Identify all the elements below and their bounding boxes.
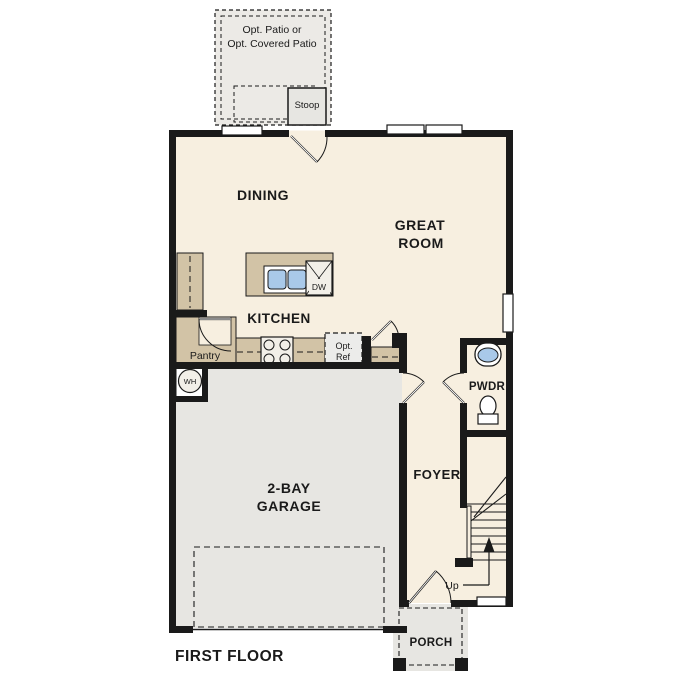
powder-sink-basin bbox=[478, 348, 498, 362]
wh-wall-bottom bbox=[176, 396, 208, 402]
porch-label: PORCH bbox=[409, 637, 452, 649]
pantry-label: Pantry bbox=[190, 350, 221, 362]
floor-title: FIRST FLOOR bbox=[175, 648, 284, 665]
window-great-room-2 bbox=[426, 125, 462, 134]
floor-plan-drawing: Opt. Patio or Opt. Covered Patio Stoop P… bbox=[0, 0, 687, 687]
opt-ref-label-line2: Ref bbox=[336, 352, 351, 362]
pantry-area: Pantry bbox=[176, 317, 236, 368]
water-heater: WH bbox=[176, 366, 208, 402]
dishwasher-label: DW bbox=[312, 282, 326, 292]
window-great-room-1 bbox=[387, 125, 424, 134]
wall-garage-bottom-right bbox=[383, 626, 407, 633]
stoop-area: Stoop bbox=[288, 88, 326, 125]
dining-label: DINING bbox=[237, 187, 289, 203]
great-room-label-line1: GREAT bbox=[395, 217, 445, 233]
powder-label: PWDR bbox=[469, 381, 506, 393]
floor-plan-page: Opt. Patio or Opt. Covered Patio Stoop P… bbox=[0, 0, 687, 687]
island-fixtures: DW bbox=[264, 261, 332, 295]
wall-right bbox=[506, 130, 513, 607]
opt-patio-label-line1: Opt. Patio or bbox=[243, 24, 302, 36]
wall-left bbox=[169, 130, 176, 633]
toilet-tank bbox=[478, 414, 498, 424]
window-right-wall bbox=[503, 294, 513, 332]
window-dining bbox=[222, 126, 262, 135]
wall-pwdr-bottom bbox=[460, 430, 513, 437]
wall-stair-west bbox=[460, 437, 467, 508]
up-label: Up bbox=[445, 580, 459, 592]
wall-stair-stub bbox=[455, 558, 473, 567]
wh-label: WH bbox=[184, 377, 197, 386]
wall-foyer-west-lower bbox=[399, 403, 407, 607]
stoop-label: Stoop bbox=[295, 100, 320, 111]
window-front bbox=[477, 597, 506, 606]
great-room-label-line2: ROOM bbox=[398, 235, 444, 251]
wall-garage-top bbox=[169, 362, 407, 369]
pantry-door-notch bbox=[199, 317, 231, 345]
wall-pantry-stub bbox=[169, 310, 207, 317]
opt-ref-label-line1: Opt. bbox=[335, 341, 352, 351]
toilet-bowl bbox=[480, 396, 496, 416]
optional-refrigerator: Opt. Ref bbox=[325, 333, 362, 367]
opt-patio-label-line2: Opt. Covered Patio bbox=[227, 38, 316, 50]
sink-basin-left bbox=[268, 270, 286, 289]
wall-pwdr-west-upper bbox=[460, 345, 467, 373]
stair-rail bbox=[467, 506, 471, 558]
foyer-label: FOYER bbox=[413, 467, 460, 482]
wall-foyer-west-upper bbox=[399, 333, 407, 373]
sink-basin-right bbox=[288, 270, 306, 289]
porch-post-left bbox=[393, 658, 406, 671]
garage-label-line2: GARAGE bbox=[257, 498, 321, 514]
back-door-opening bbox=[289, 131, 325, 137]
kitchen-label: KITCHEN bbox=[247, 311, 311, 326]
garage-label-line1: 2-BAY bbox=[267, 480, 310, 496]
wall-bottom-door-left bbox=[399, 600, 409, 607]
wall-closet-post-left bbox=[362, 336, 371, 368]
wall-garage-bottom-left bbox=[169, 626, 193, 633]
porch-post-right bbox=[455, 658, 468, 671]
